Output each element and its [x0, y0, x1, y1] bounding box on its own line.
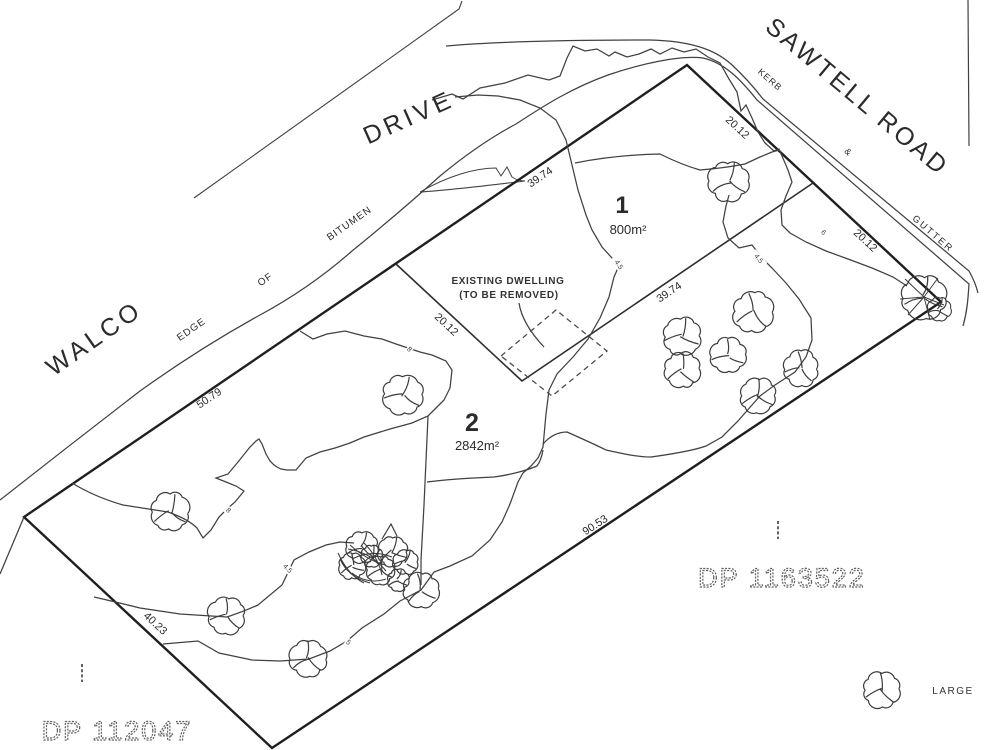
svg-text:LARGE: LARGE — [932, 686, 973, 697]
svg-text:DP 1163522: DP 1163522 — [698, 563, 866, 593]
svg-text:DP 112047: DP 112047 — [42, 716, 193, 746]
svg-text:2: 2 — [465, 409, 479, 437]
svg-text:1: 1 — [615, 192, 628, 219]
svg-text:EXISTING DWELLING: EXISTING DWELLING — [452, 276, 565, 287]
svg-text:2842m²: 2842m² — [455, 438, 500, 453]
svg-text:(TO BE REMOVED): (TO BE REMOVED) — [459, 290, 558, 301]
svg-text:800m²: 800m² — [610, 222, 648, 237]
